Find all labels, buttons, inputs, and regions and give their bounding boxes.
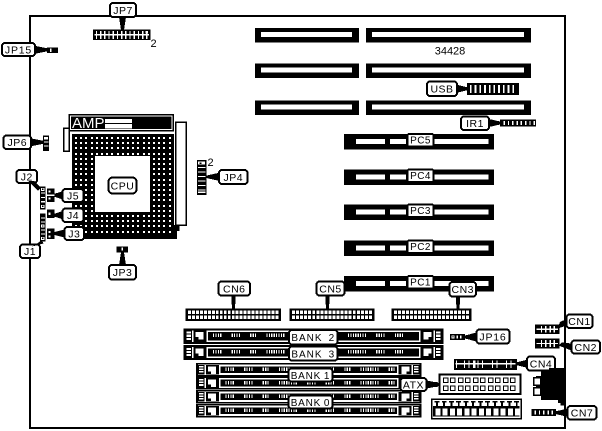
svg-text:CN5: CN5: [319, 283, 342, 295]
svg-text:2: 2: [150, 38, 156, 50]
svg-text:J4: J4: [67, 210, 79, 222]
svg-text:ATX: ATX: [403, 379, 424, 391]
svg-text:CN4: CN4: [530, 358, 553, 370]
svg-text:JP16: JP16: [479, 331, 506, 343]
svg-text:IR1: IR1: [466, 118, 484, 130]
svg-text:BANK 1: BANK 1: [291, 371, 331, 382]
svg-text:PC5: PC5: [410, 136, 431, 147]
svg-text:CN2: CN2: [574, 342, 597, 354]
svg-text:BANK 0: BANK 0: [291, 398, 331, 409]
svg-text:CN3: CN3: [451, 284, 474, 296]
svg-text:JP4: JP4: [223, 172, 243, 184]
svg-text:JP7: JP7: [113, 5, 133, 17]
svg-text:2: 2: [207, 157, 213, 169]
svg-text:PC4: PC4: [410, 171, 431, 182]
svg-text:CN1: CN1: [568, 316, 591, 328]
svg-text:USB: USB: [430, 84, 453, 96]
svg-text:PC1: PC1: [410, 278, 431, 289]
svg-text:PC2: PC2: [410, 242, 431, 253]
svg-text:JP6: JP6: [7, 137, 27, 149]
svg-text:CN7: CN7: [571, 408, 594, 420]
svg-text:J3: J3: [68, 228, 80, 240]
svg-text:JP3: JP3: [113, 267, 133, 279]
svg-text:BANK 3: BANK 3: [291, 349, 335, 360]
svg-text:CPU: CPU: [111, 180, 135, 192]
svg-text:34428: 34428: [435, 45, 466, 57]
svg-text:BANK 2: BANK 2: [291, 333, 335, 344]
svg-text:J5: J5: [67, 190, 79, 202]
svg-text:CN6: CN6: [223, 283, 246, 295]
svg-text:AMP: AMP: [72, 115, 105, 132]
svg-text:J1: J1: [24, 246, 36, 258]
svg-text:PC3: PC3: [410, 206, 431, 217]
svg-text:JP15: JP15: [5, 44, 32, 56]
